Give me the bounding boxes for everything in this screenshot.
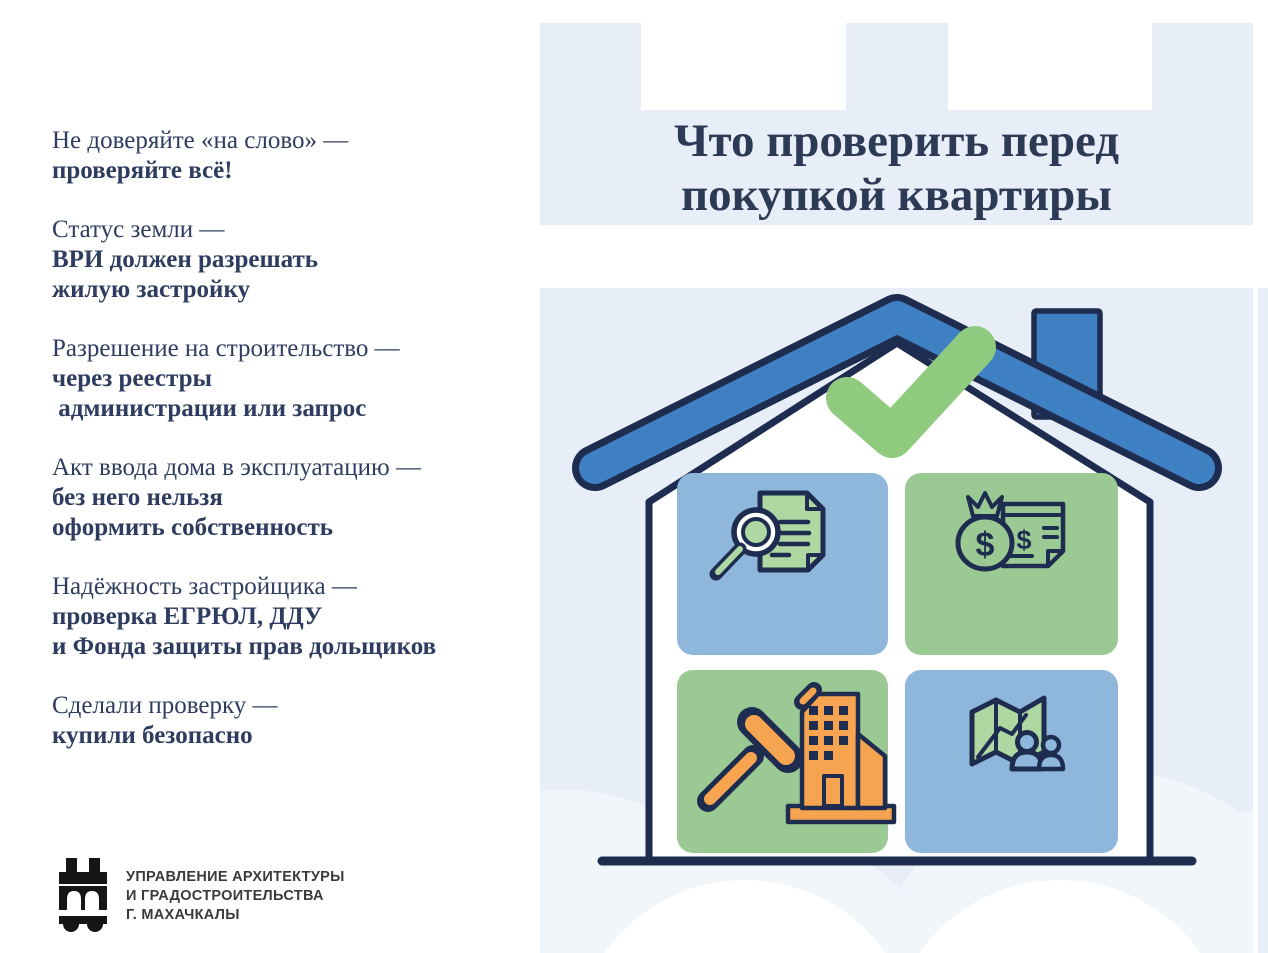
checklist-item: Надёжность застройщика — проверка ЕГРЮЛ,… — [52, 572, 532, 662]
page: Не доверяйте «на слово» — проверяйте всё… — [0, 0, 1268, 953]
item-bold-line: проверка ЕГРЮЛ, ДДУ — [52, 602, 532, 632]
checklist-item: Разрешение на строительство — через реес… — [52, 334, 532, 424]
poster-title-line1: Что проверить перед — [674, 114, 1119, 168]
checklist-item: Не доверяйте «на слово» — проверяйте всё… — [52, 126, 532, 186]
item-intro: Сделали проверку — — [52, 691, 532, 721]
org-name-line: И ГРАДОСТРОИТЕЛЬСТВА — [126, 887, 345, 906]
panel-edge-sliver — [1258, 288, 1268, 953]
item-intro: Надёжность застройщика — — [52, 572, 532, 602]
checklist-item: Сделали проверку — купили безопасно — [52, 691, 532, 751]
item-bold-line: оформить собственность — [52, 513, 532, 543]
org-logo: УПРАВЛЕНИЕ АРХИТЕКТУРЫ И ГРАДОСТРОИТЕЛЬС… — [54, 858, 345, 934]
item-bold-line: проверяйте всё! — [52, 156, 532, 186]
item-bold-line: купили безопасно — [52, 721, 532, 751]
item-bold-line: жилую застройку — [52, 275, 532, 305]
money-bag-invoice-icon: $ $ — [958, 493, 1063, 569]
checklist-item: Акт ввода дома в эксплуатацию — без него… — [52, 453, 532, 543]
org-name-line: УПРАВЛЕНИЕ АРХИТЕКТУРЫ — [126, 868, 345, 887]
org-name-line: Г. МАХАЧКАЛЫ — [126, 906, 345, 925]
item-intro: Акт ввода дома в эксплуатацию — — [52, 453, 532, 483]
infographic-panel: $ $ — [540, 0, 1268, 953]
item-intro: Не доверяйте «на слово» — — [52, 126, 532, 156]
item-intro: Разрешение на строительство — — [52, 334, 532, 364]
dollar-glyph: $ — [1016, 525, 1031, 555]
item-bold-line: без него нельзя — [52, 483, 532, 513]
battlement-decoration — [540, 23, 1253, 113]
checklist-item: Статус земли — ВРИ должен разрешать жилу… — [52, 215, 532, 305]
item-bold-line: ВРИ должен разрешать — [52, 245, 532, 275]
poster-title: Что проверить перед покупкой квартиры — [540, 110, 1253, 225]
org-name: УПРАВЛЕНИЕ АРХИТЕКТУРЫ И ГРАДОСТРОИТЕЛЬС… — [126, 868, 345, 925]
dollar-glyph: $ — [976, 526, 995, 564]
item-bold-line: через реестры — [52, 364, 532, 394]
checklist: Не доверяйте «на слово» — проверяйте всё… — [52, 126, 532, 780]
fortress-tower-logo-icon — [54, 858, 112, 934]
item-bold-line: и Фонда защиты прав дольщиков — [52, 632, 532, 662]
item-bold-line: администрации или запрос — [52, 394, 532, 424]
item-intro: Статус земли — — [52, 215, 532, 245]
poster-title-line2: покупкой квартиры — [681, 168, 1112, 222]
